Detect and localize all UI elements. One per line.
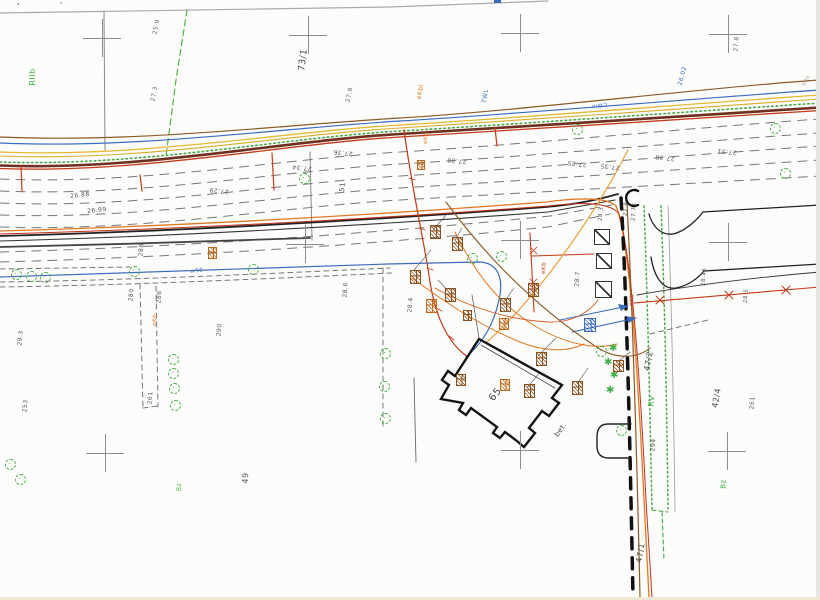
grid-cross-icon (86, 434, 124, 472)
grid-cross-icon (501, 431, 539, 469)
plan-annotations: 73/1RIIb25.927.327.8eKblTWL26.0227.8CWm2… (0, 0, 820, 600)
tree-icon (496, 251, 507, 262)
map-label: 51 (339, 182, 347, 192)
utility-symbol (572, 381, 583, 395)
map-label: eKb (630, 294, 637, 306)
tree-icon (169, 383, 180, 394)
map-label: 261 (147, 391, 154, 404)
utility-symbol (208, 247, 217, 259)
utility-symbol (500, 379, 510, 391)
tree-icon (170, 400, 181, 411)
map-label: 27.34 (292, 163, 312, 171)
utility-symbol (445, 288, 456, 302)
signal-box-icon (596, 253, 612, 269)
conifer-icon: ✱ (609, 344, 617, 354)
utility-symbol (430, 225, 441, 239)
map-label: 28.5 (744, 289, 751, 304)
map-label: CWm (591, 100, 608, 108)
conifer-icon: ✱ (610, 371, 618, 381)
map-label: bet. (554, 422, 569, 439)
grid-cross-icon (83, 19, 121, 57)
grid-cross-icon (289, 16, 327, 54)
map-label: 286 (156, 290, 163, 303)
tree-icon (616, 425, 627, 436)
map-label: 49 (242, 472, 251, 484)
tree-icon (248, 264, 259, 275)
grid-cross-icon (708, 432, 746, 470)
grid-cross-icon (709, 15, 747, 53)
map-label: 26.99 (87, 207, 107, 215)
tree-icon (26, 271, 37, 282)
map-label: 253 (22, 399, 29, 412)
map-label: RV (648, 395, 657, 407)
tree-icon (379, 381, 390, 392)
map-label: 290 (216, 323, 223, 336)
map-label: 27.8 (624, 202, 631, 217)
utility-symbol (524, 384, 535, 398)
utility-symbol (463, 310, 472, 321)
map-label: 28.4 (407, 297, 414, 313)
tree-icon (467, 253, 478, 264)
map-label: 27.73 (631, 203, 638, 222)
map-label: 29.3 (17, 330, 24, 346)
grid-cross-icon (501, 221, 539, 259)
map-label: w90 (190, 269, 203, 276)
tree-icon (5, 459, 16, 470)
tree-icon (15, 474, 26, 485)
map-label: eKb (153, 314, 160, 326)
utility-symbol (426, 299, 437, 313)
tree-icon (168, 368, 179, 379)
map-label: Bz (721, 479, 728, 488)
map-label: 26.02 (678, 66, 689, 87)
map-label: 27.31 (717, 147, 737, 155)
tree-icon (380, 348, 391, 359)
map-label: 47/2 (643, 350, 654, 371)
tree-icon (299, 173, 310, 184)
tree-icon (572, 124, 583, 135)
utility-symbol (500, 298, 511, 312)
map-label: 27.36 (333, 148, 353, 156)
conifer-icon: ✱ (606, 386, 614, 396)
conifer-icon: ✱ (604, 358, 612, 368)
site-plan-scan: 73/1RIIb25.927.327.8eKblTWL26.0227.8CWm2… (0, 0, 820, 600)
utility-symbol (536, 352, 547, 366)
utility-symbol (613, 360, 624, 372)
map-label: 25.9 (152, 19, 161, 35)
map-label: 27.30 (655, 153, 675, 161)
map-label: eKbl (417, 84, 426, 100)
map-label: 28.3 (599, 207, 606, 222)
tree-icon (770, 123, 781, 134)
map-label: TWL (482, 88, 490, 103)
map-label: 47/1 (635, 542, 646, 563)
map-label: 28.6 (342, 282, 349, 298)
tree-icon (40, 272, 51, 283)
map-label: 261 (749, 396, 756, 409)
map-label: 000 (802, 75, 812, 87)
map-label: 42/4 (711, 387, 722, 408)
map-label: 27.29 (209, 186, 229, 194)
grid-cross-icon (286, 225, 324, 263)
map-label: eKb (542, 262, 549, 274)
utility-symbol (452, 237, 463, 251)
map-label: 288 (138, 243, 145, 256)
grid-cross-icon (501, 14, 539, 52)
utility-symbol (456, 374, 466, 386)
tree-icon (129, 266, 140, 277)
grid-cross-icon (709, 223, 747, 261)
map-label: 27.30 (447, 156, 467, 164)
tree-icon (780, 168, 791, 179)
utility-symbol (584, 318, 596, 332)
tree-icon (596, 346, 607, 357)
map-label: 27.35 (600, 162, 620, 170)
map-label: 28.45 (701, 268, 708, 287)
utility-symbol (410, 270, 421, 284)
signal-box-icon (594, 229, 610, 245)
utility-symbol (499, 318, 509, 330)
map-label: Bz (177, 483, 183, 491)
map-label: RIIb (29, 68, 37, 85)
utility-symbol (417, 160, 425, 170)
signal-box-icon (595, 281, 612, 298)
tree-icon (380, 413, 391, 424)
map-label: 27.8 (345, 87, 354, 103)
map-label: 27.3 (150, 86, 159, 102)
utility-symbol (528, 283, 539, 297)
map-label: 26.88 (70, 192, 90, 200)
scan-edge-right (816, 0, 820, 600)
tree-icon (168, 354, 179, 365)
map-label: 28.7 (574, 271, 581, 287)
map-label: 280 (128, 288, 135, 301)
map-label: 27.25 (567, 159, 587, 167)
tree-icon (11, 269, 22, 280)
map-label: eKb (424, 132, 431, 144)
map-label: 294 (650, 438, 657, 451)
